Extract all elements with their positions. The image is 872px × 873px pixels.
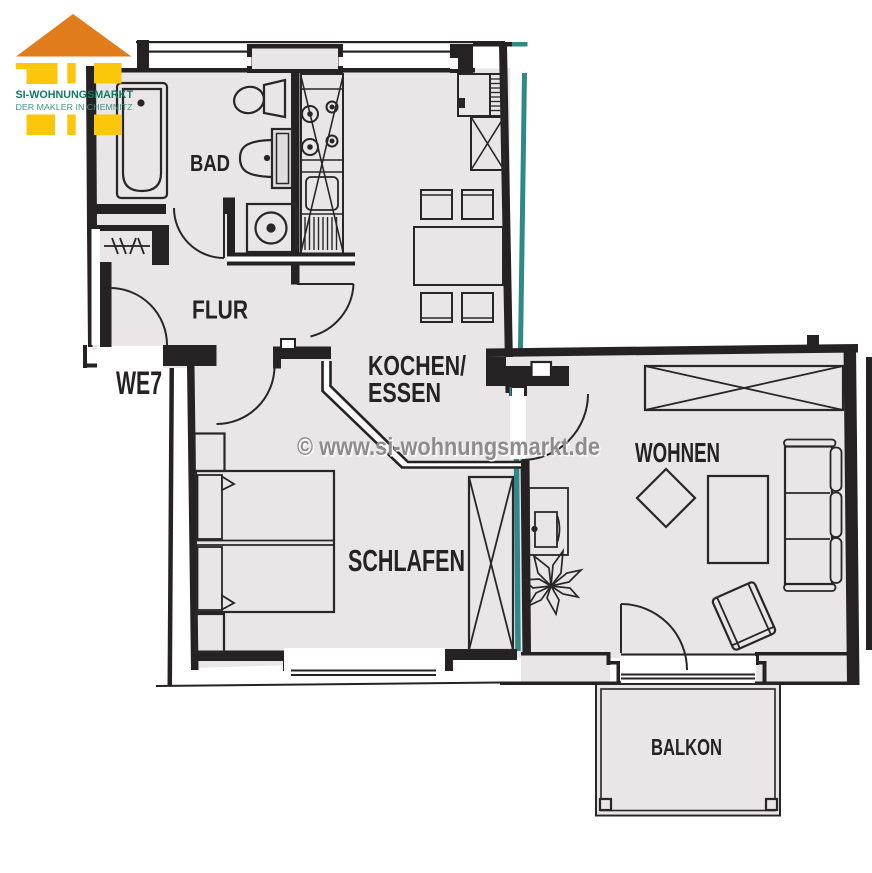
svg-text:FLUR: FLUR <box>192 295 248 325</box>
svg-text:WOHNEN: WOHNEN <box>635 437 720 468</box>
svg-text:ESSEN: ESSEN <box>368 377 441 408</box>
svg-text:SCHLAFEN: SCHLAFEN <box>348 543 465 578</box>
svg-text:BAD: BAD <box>190 150 230 176</box>
svg-text:BALKON: BALKON <box>651 734 722 760</box>
svg-text:SI-WOHNUNGSMARKT: SI-WOHNUNGSMARKT <box>16 89 134 101</box>
svg-text:© www.si-wohnungsmarkt.de: © www.si-wohnungsmarkt.de <box>297 433 600 461</box>
svg-text:DER MAKLER IN CHEMNITZ: DER MAKLER IN CHEMNITZ <box>16 102 133 112</box>
svg-text:WE7: WE7 <box>116 365 162 401</box>
